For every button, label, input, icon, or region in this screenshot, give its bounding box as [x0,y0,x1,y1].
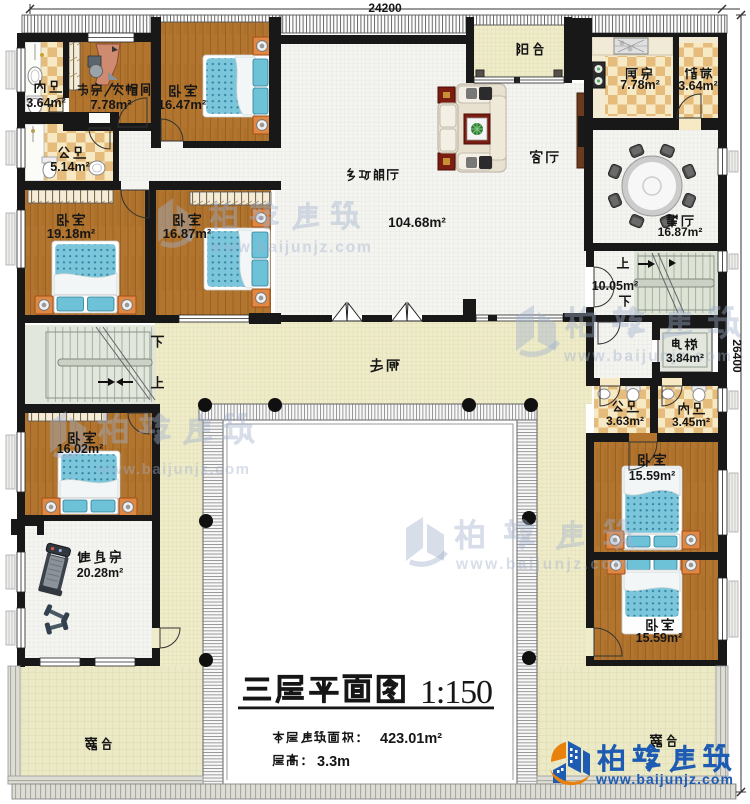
svg-text:19.18m²: 19.18m² [47,226,96,241]
svg-text:3.64m²: 3.64m² [678,79,718,93]
svg-text:www.baijunjz.com: www.baijunjz.com [595,771,733,787]
svg-text:16.02m²: 16.02m² [57,442,104,456]
svg-text:7.78m²: 7.78m² [620,78,660,92]
svg-text:15.59m²: 15.59m² [636,631,683,645]
svg-text:www.baijunjz.com: www.baijunjz.com [563,348,733,365]
svg-text:3.45m²: 3.45m² [672,415,710,429]
svg-text:www.baijunjz.com: www.baijunjz.com [455,556,630,573]
svg-text:16.87m²: 16.87m² [658,225,703,239]
svg-text:24200: 24200 [368,1,402,15]
svg-text:20.28m²: 20.28m² [77,566,124,580]
svg-text:423.01m²: 423.01m² [380,731,442,747]
svg-text:10.05m²: 10.05m² [592,279,639,293]
svg-text:7.78m²: 7.78m² [90,97,132,112]
svg-text:www.baijunjz.com: www.baijunjz.com [96,461,250,478]
svg-text:www.baijunjz.com: www.baijunjz.com [209,239,373,256]
svg-text:3.3m: 3.3m [317,754,350,770]
svg-text:1:150: 1:150 [420,674,493,711]
svg-text:5.14m²: 5.14m² [50,160,90,174]
svg-text:26400: 26400 [730,339,744,373]
svg-text:3.63m²: 3.63m² [606,414,644,428]
svg-text:104.68m²: 104.68m² [388,215,446,230]
svg-text:3.64m²: 3.64m² [26,96,66,110]
svg-text:16.87m²: 16.87m² [163,226,212,241]
svg-text:3.84m²: 3.84m² [666,351,704,365]
svg-text:15.59m²: 15.59m² [629,469,676,483]
svg-text:16.47m²: 16.47m² [158,97,207,112]
